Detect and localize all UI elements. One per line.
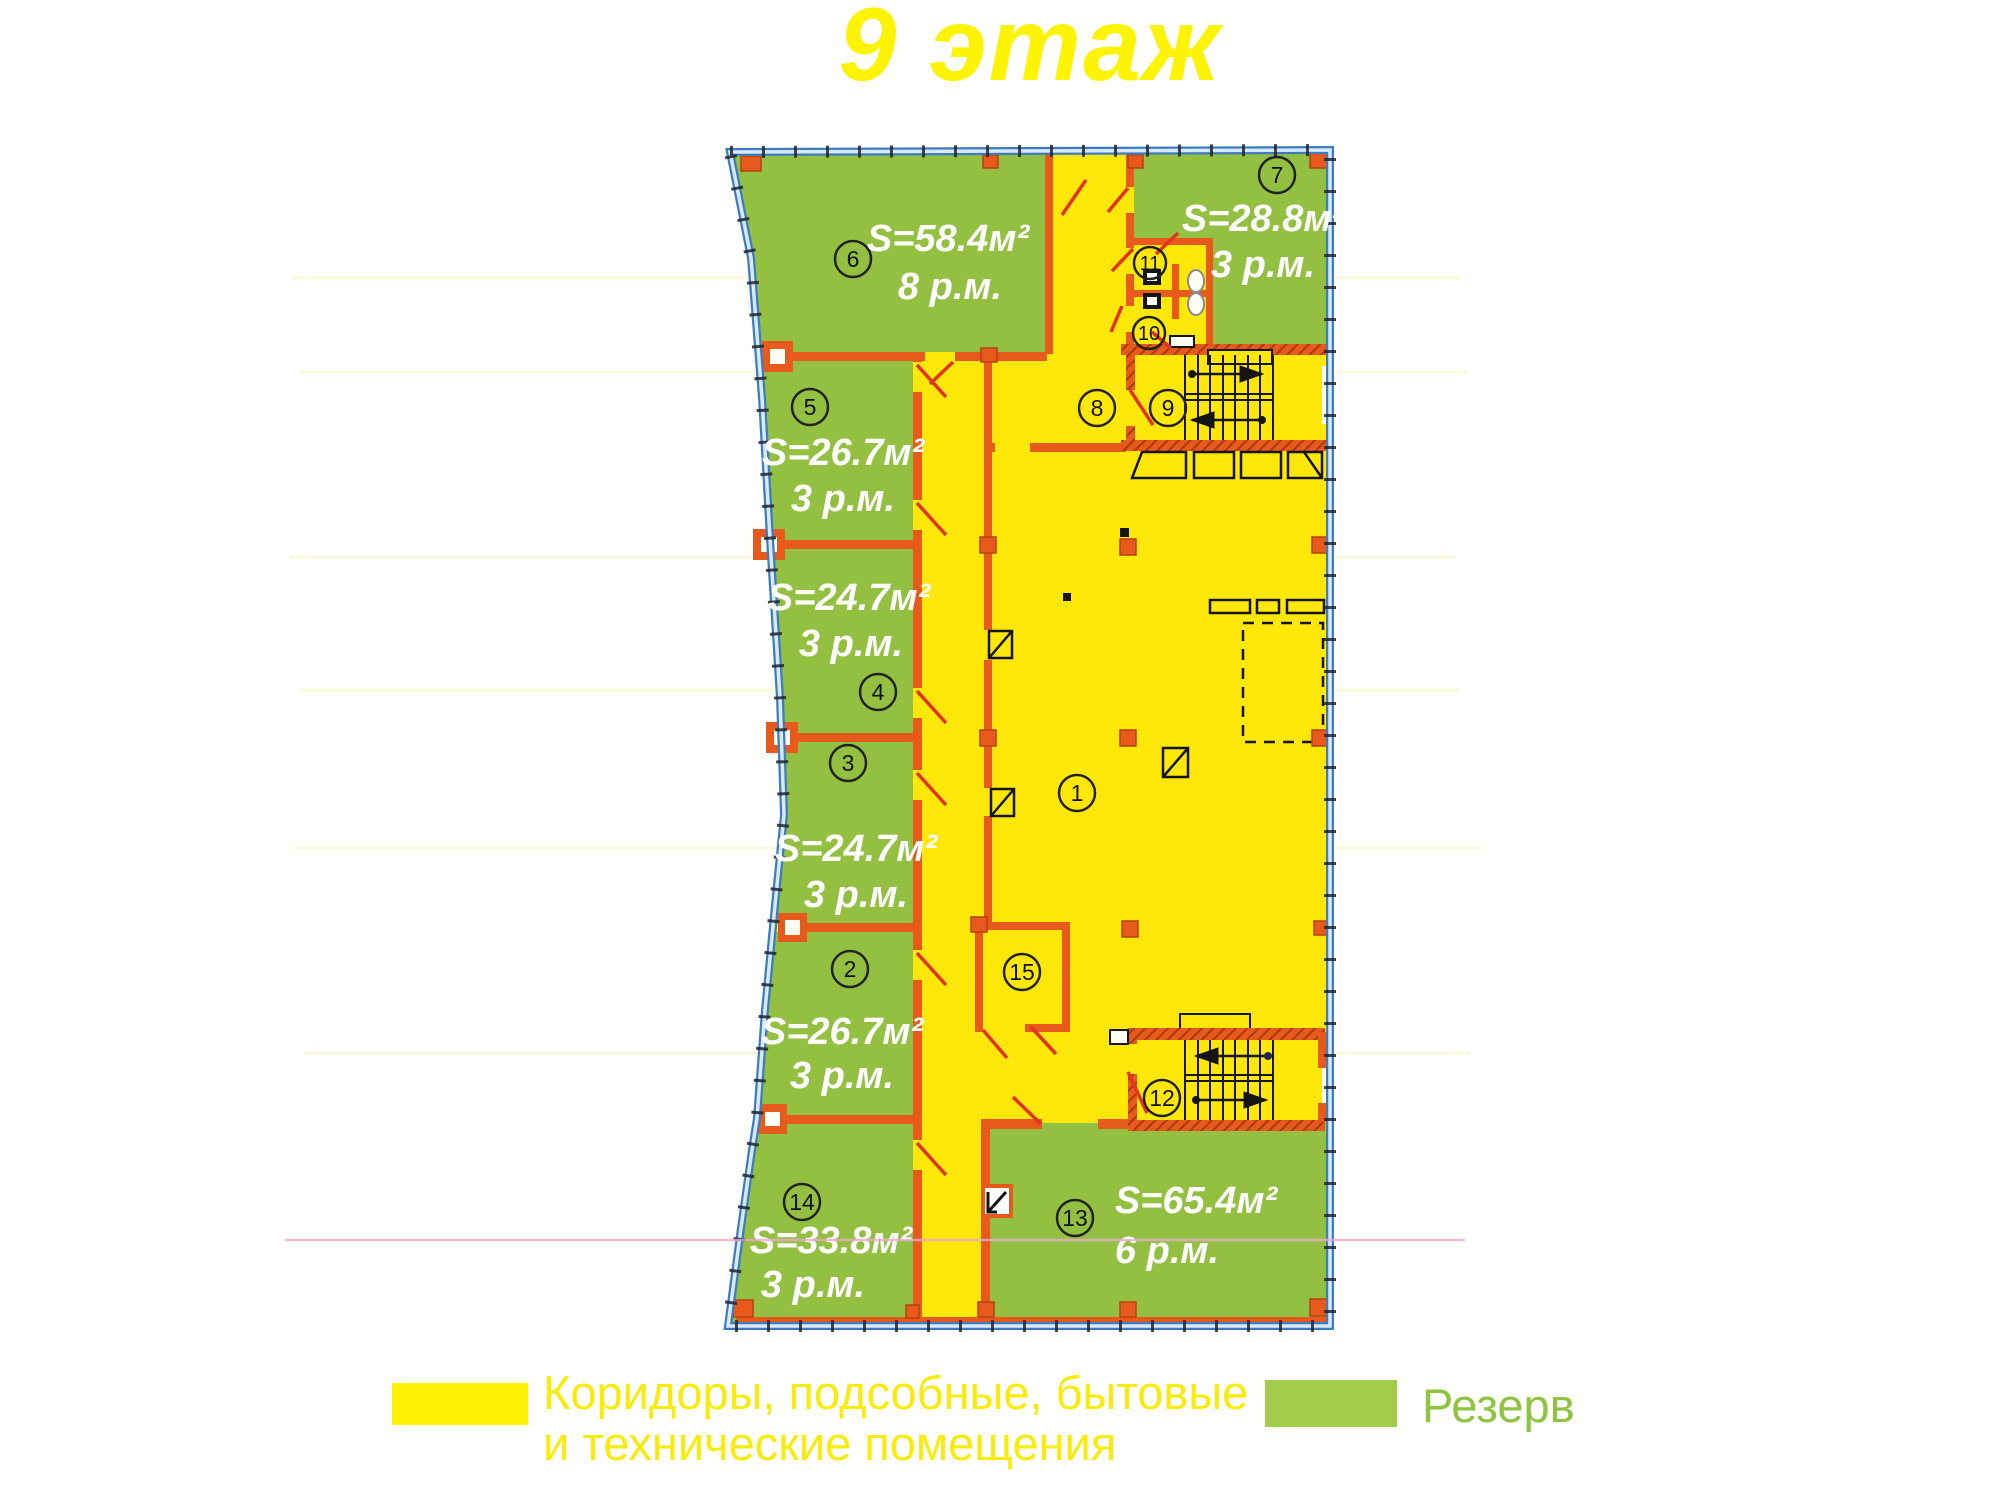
room-6-places-label: 8 р.м. [898, 266, 1002, 308]
room-6-area-label: S=58.4м² [867, 218, 1031, 260]
room-4-area-label: S=24.7м² [768, 577, 932, 619]
svg-text:11: 11 [1140, 253, 1161, 275]
room-4-places-label: 3 р.м. [799, 623, 903, 665]
legend-reserve-label: Резерв [1422, 1380, 1575, 1431]
svg-text:9: 9 [1162, 395, 1175, 421]
toilet-icon [1188, 270, 1204, 292]
room-badge-15: 15 [1004, 954, 1040, 990]
door-leaf-icon [1110, 1030, 1128, 1044]
svg-text:6: 6 [847, 246, 860, 272]
floorplan-drawing: 1 2 3 4 5 6 7 8 9 10 11 12 13 14 15 S=58… [0, 0, 2000, 1500]
svg-text:12: 12 [1149, 1085, 1175, 1111]
legend-corridor-line2: и технические помещения [543, 1418, 1248, 1469]
plan: 1 2 3 4 5 6 7 8 9 10 11 12 13 14 15 S=58… [728, 150, 1345, 1326]
svg-text:2: 2 [844, 956, 857, 982]
room-7-places-label: 3 р.м. [1211, 244, 1315, 286]
svg-text:4: 4 [872, 679, 885, 705]
svg-text:5: 5 [804, 394, 817, 420]
room-3-area-label: S=24.7м² [775, 828, 939, 870]
legend-corridor-label: Коридоры, подсобные, бытовые и техническ… [543, 1367, 1248, 1469]
room-13-area [981, 1123, 1330, 1326]
room-5-area-label: S=26.7м² [762, 432, 926, 474]
svg-text:13: 13 [1062, 1205, 1088, 1231]
room-13-places-label: 6 р.м. [1115, 1230, 1219, 1272]
svg-text:8: 8 [1091, 395, 1104, 421]
scanned-floorplan-page: 9 этаж [0, 0, 2000, 1500]
room-14-places-label: 3 р.м. [761, 1264, 865, 1306]
legend-reserve-swatch [1265, 1380, 1397, 1427]
svg-text:3: 3 [842, 750, 855, 776]
room13-door [983, 1186, 1011, 1216]
door-leaf-icon [1170, 336, 1194, 347]
room-badge-12: 12 [1144, 1080, 1180, 1116]
legend-corridor-swatch [392, 1383, 528, 1425]
room-7-area-label: S=28.8м² [1182, 198, 1346, 240]
room-2-area-label: S=26.7м² [761, 1011, 925, 1053]
room-badge-13: 13 [1057, 1200, 1093, 1236]
svg-text:7: 7 [1271, 162, 1284, 188]
legend-corridor-line1: Коридоры, подсобные, бытовые [543, 1367, 1248, 1418]
toilet-icon [1188, 293, 1204, 315]
room-13-area-label: S=65.4м² [1115, 1180, 1279, 1222]
room-badge-14: 14 [784, 1184, 820, 1220]
svg-text:14: 14 [789, 1189, 815, 1215]
room-5-places-label: 3 р.м. [791, 478, 895, 520]
room-2-places-label: 3 р.м. [790, 1055, 894, 1097]
room-3-places-label: 3 р.м. [804, 874, 908, 916]
svg-text:1: 1 [1071, 780, 1084, 806]
svg-text:15: 15 [1009, 959, 1035, 985]
svg-text:10: 10 [1138, 323, 1160, 345]
